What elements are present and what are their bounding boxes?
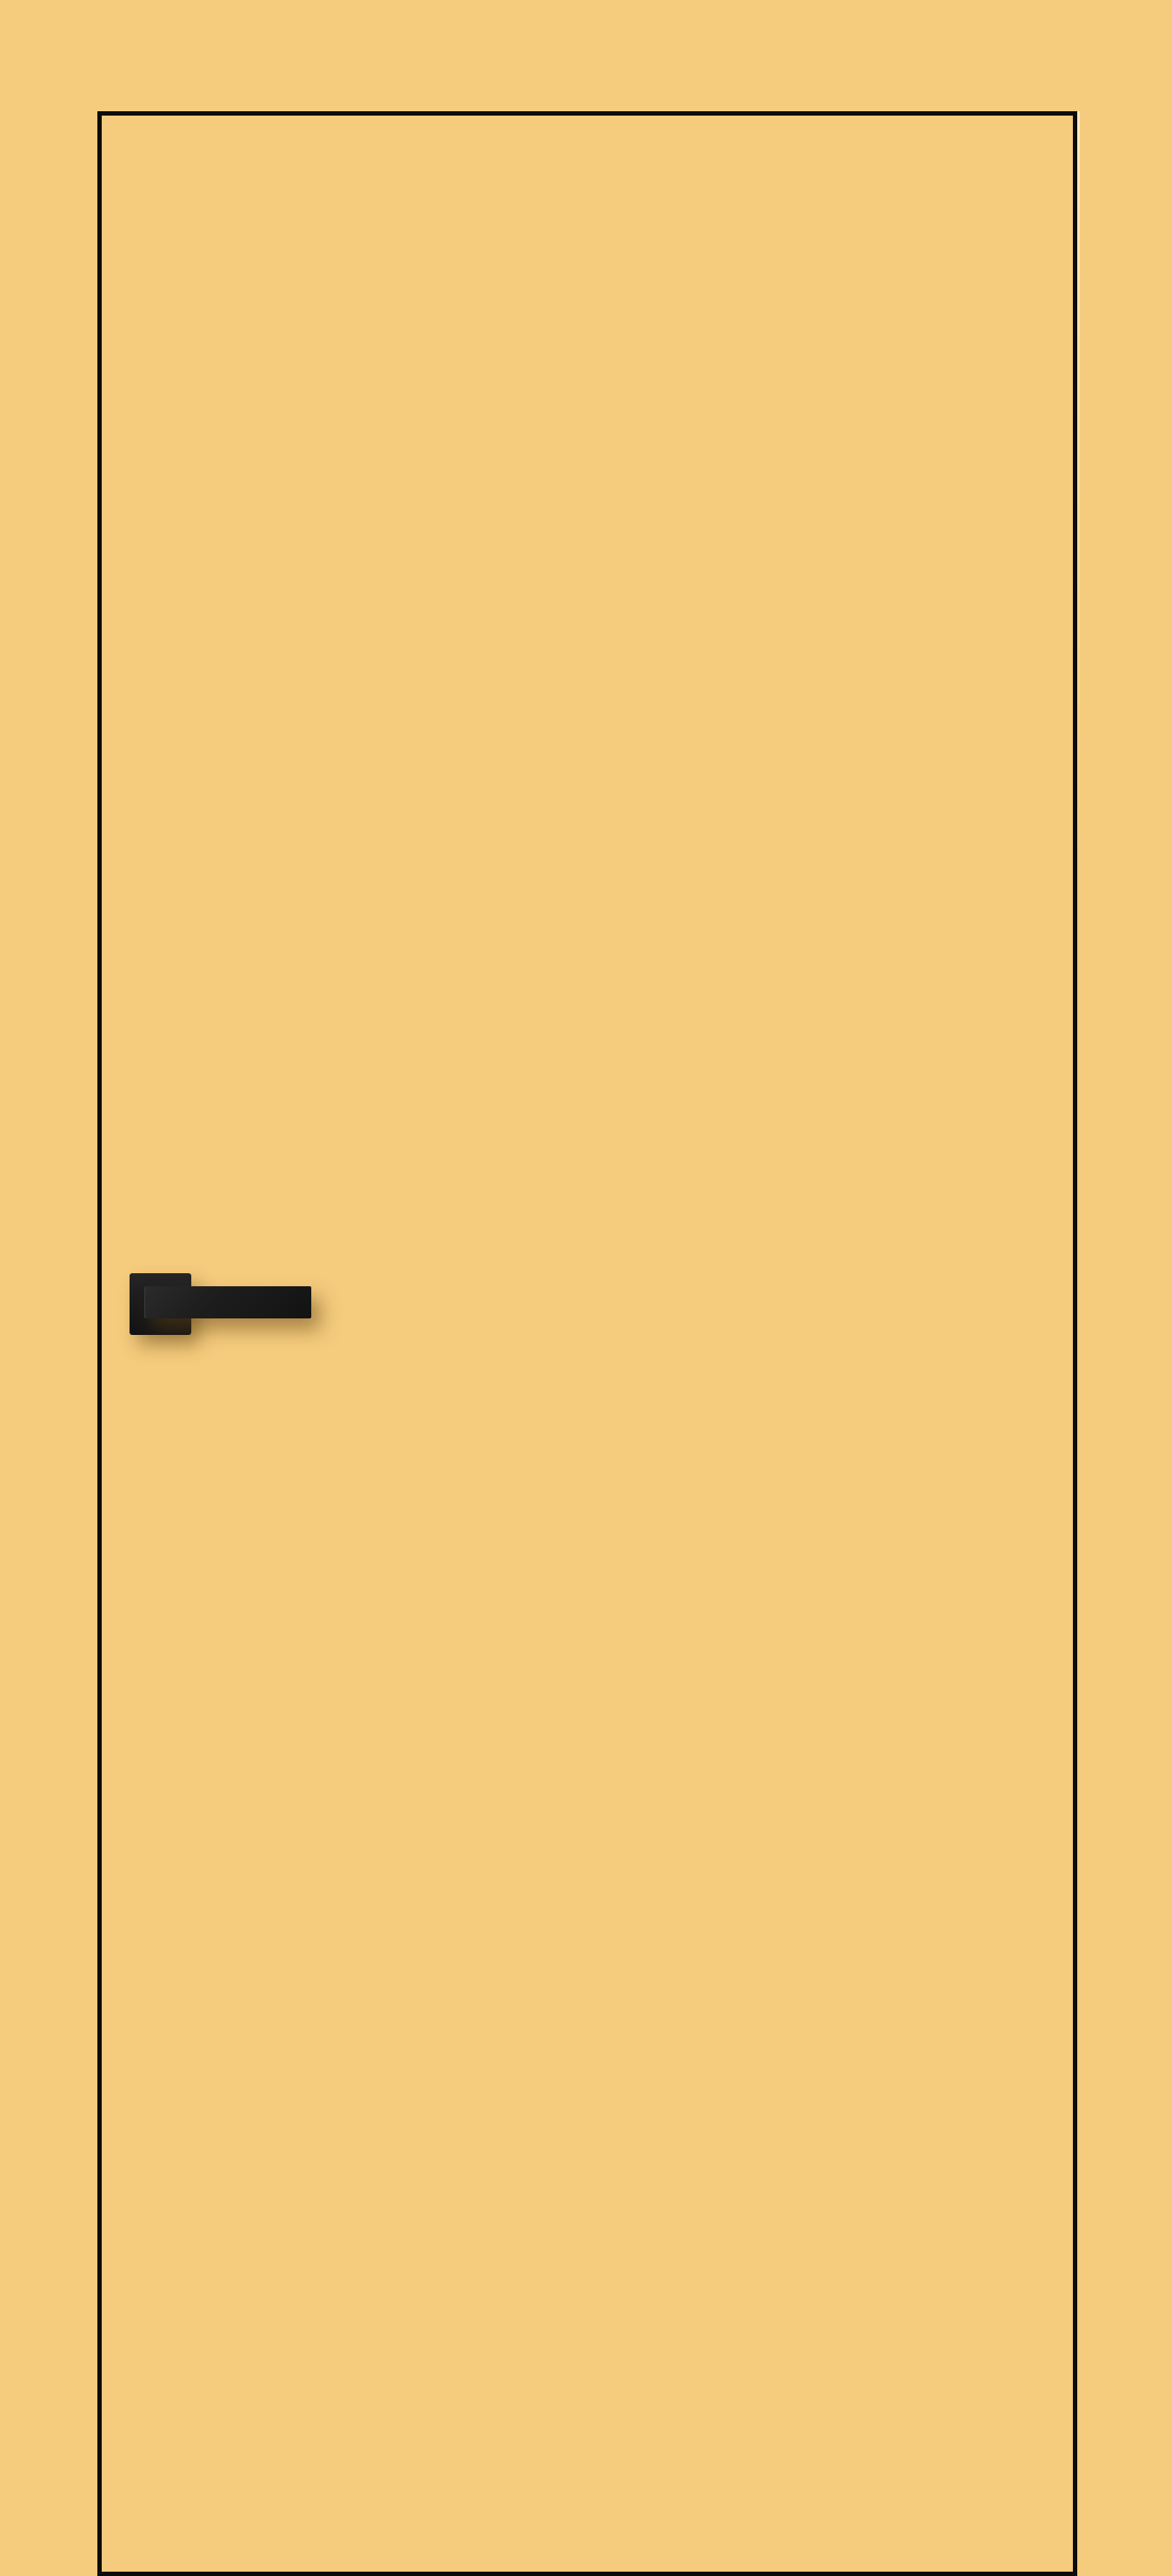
backdrop-wall (0, 0, 1172, 2576)
door-edge-highlight (1077, 111, 1080, 893)
door-leaf (97, 111, 1077, 2576)
handle-lever (144, 1286, 311, 1318)
